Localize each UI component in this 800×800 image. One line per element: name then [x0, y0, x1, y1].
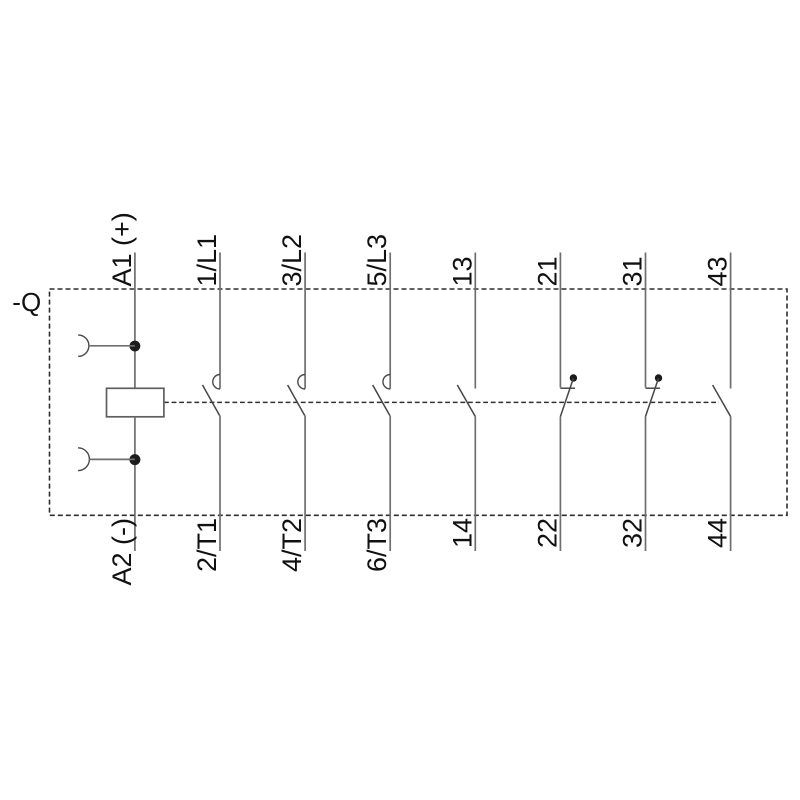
svg-text:5/L3: 5/L3 [362, 234, 392, 287]
svg-text:6/T3: 6/T3 [362, 518, 392, 572]
svg-text:13: 13 [447, 256, 477, 286]
svg-text:-Q: -Q [12, 287, 41, 317]
svg-text:3/L2: 3/L2 [277, 234, 307, 287]
svg-text:43: 43 [703, 256, 733, 286]
svg-text:4/T2: 4/T2 [277, 518, 307, 572]
svg-text:31: 31 [618, 256, 648, 286]
svg-text:14: 14 [447, 518, 477, 548]
svg-text:1/L1: 1/L1 [192, 234, 222, 287]
svg-text:22: 22 [532, 518, 562, 548]
svg-text:A1 (+): A1 (+) [107, 212, 137, 286]
svg-text:44: 44 [703, 518, 733, 548]
svg-text:32: 32 [618, 518, 648, 548]
svg-text:A2 (-): A2 (-) [107, 518, 137, 586]
svg-text:2/T1: 2/T1 [192, 518, 222, 572]
svg-text:21: 21 [532, 256, 562, 286]
